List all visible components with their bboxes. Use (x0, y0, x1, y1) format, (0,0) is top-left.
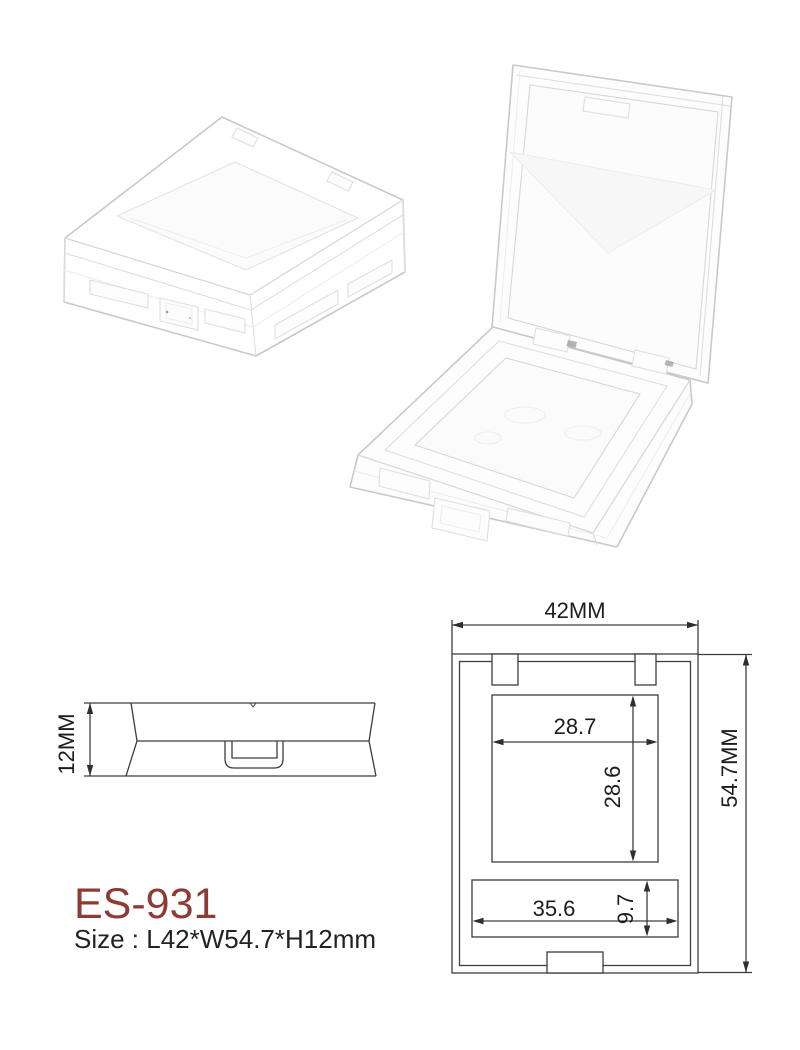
top-view-outline (452, 654, 698, 973)
product-caption: ES-931 Size : L42*W54.7*H12mm (74, 884, 376, 954)
model-number: ES-931 (74, 884, 376, 924)
height-dim-label: 54.7MM (717, 728, 742, 807)
open-case-lid (492, 65, 732, 383)
well-height-dimension: 9.7 (613, 881, 650, 937)
size-label: Size : L42*W54.7*H12mm (74, 924, 376, 954)
open-case-photo (340, 40, 760, 570)
well-width-dim-label: 35.6 (533, 896, 576, 921)
pan-width-dim-label: 28.7 (554, 714, 597, 739)
well-height-dim-label: 9.7 (613, 894, 638, 925)
hinge-notch-left (492, 654, 518, 685)
width-dim-label: 42MM (544, 598, 605, 623)
top-view-drawing: 42MM 54.7MM 28.7 28.6 35. (440, 590, 770, 990)
pan-height-dimension: 28.6 (600, 696, 636, 862)
pan-height-dim-label: 28.6 (600, 766, 625, 809)
height-dimension: 54.7MM (698, 655, 752, 973)
hinge-notch-right (635, 654, 656, 685)
side-height-dim-label: 12MM (54, 713, 79, 774)
side-height-dimension: 12MM (54, 703, 131, 776)
width-dimension: 42MM (452, 598, 698, 654)
latch-tab-outline (547, 952, 603, 973)
side-view-profile (126, 703, 376, 776)
side-view-drawing: 12MM (40, 660, 400, 800)
product-spec-sheet: 12MM 42MM 54.7MM (0, 0, 800, 1050)
open-case-base (350, 327, 692, 547)
